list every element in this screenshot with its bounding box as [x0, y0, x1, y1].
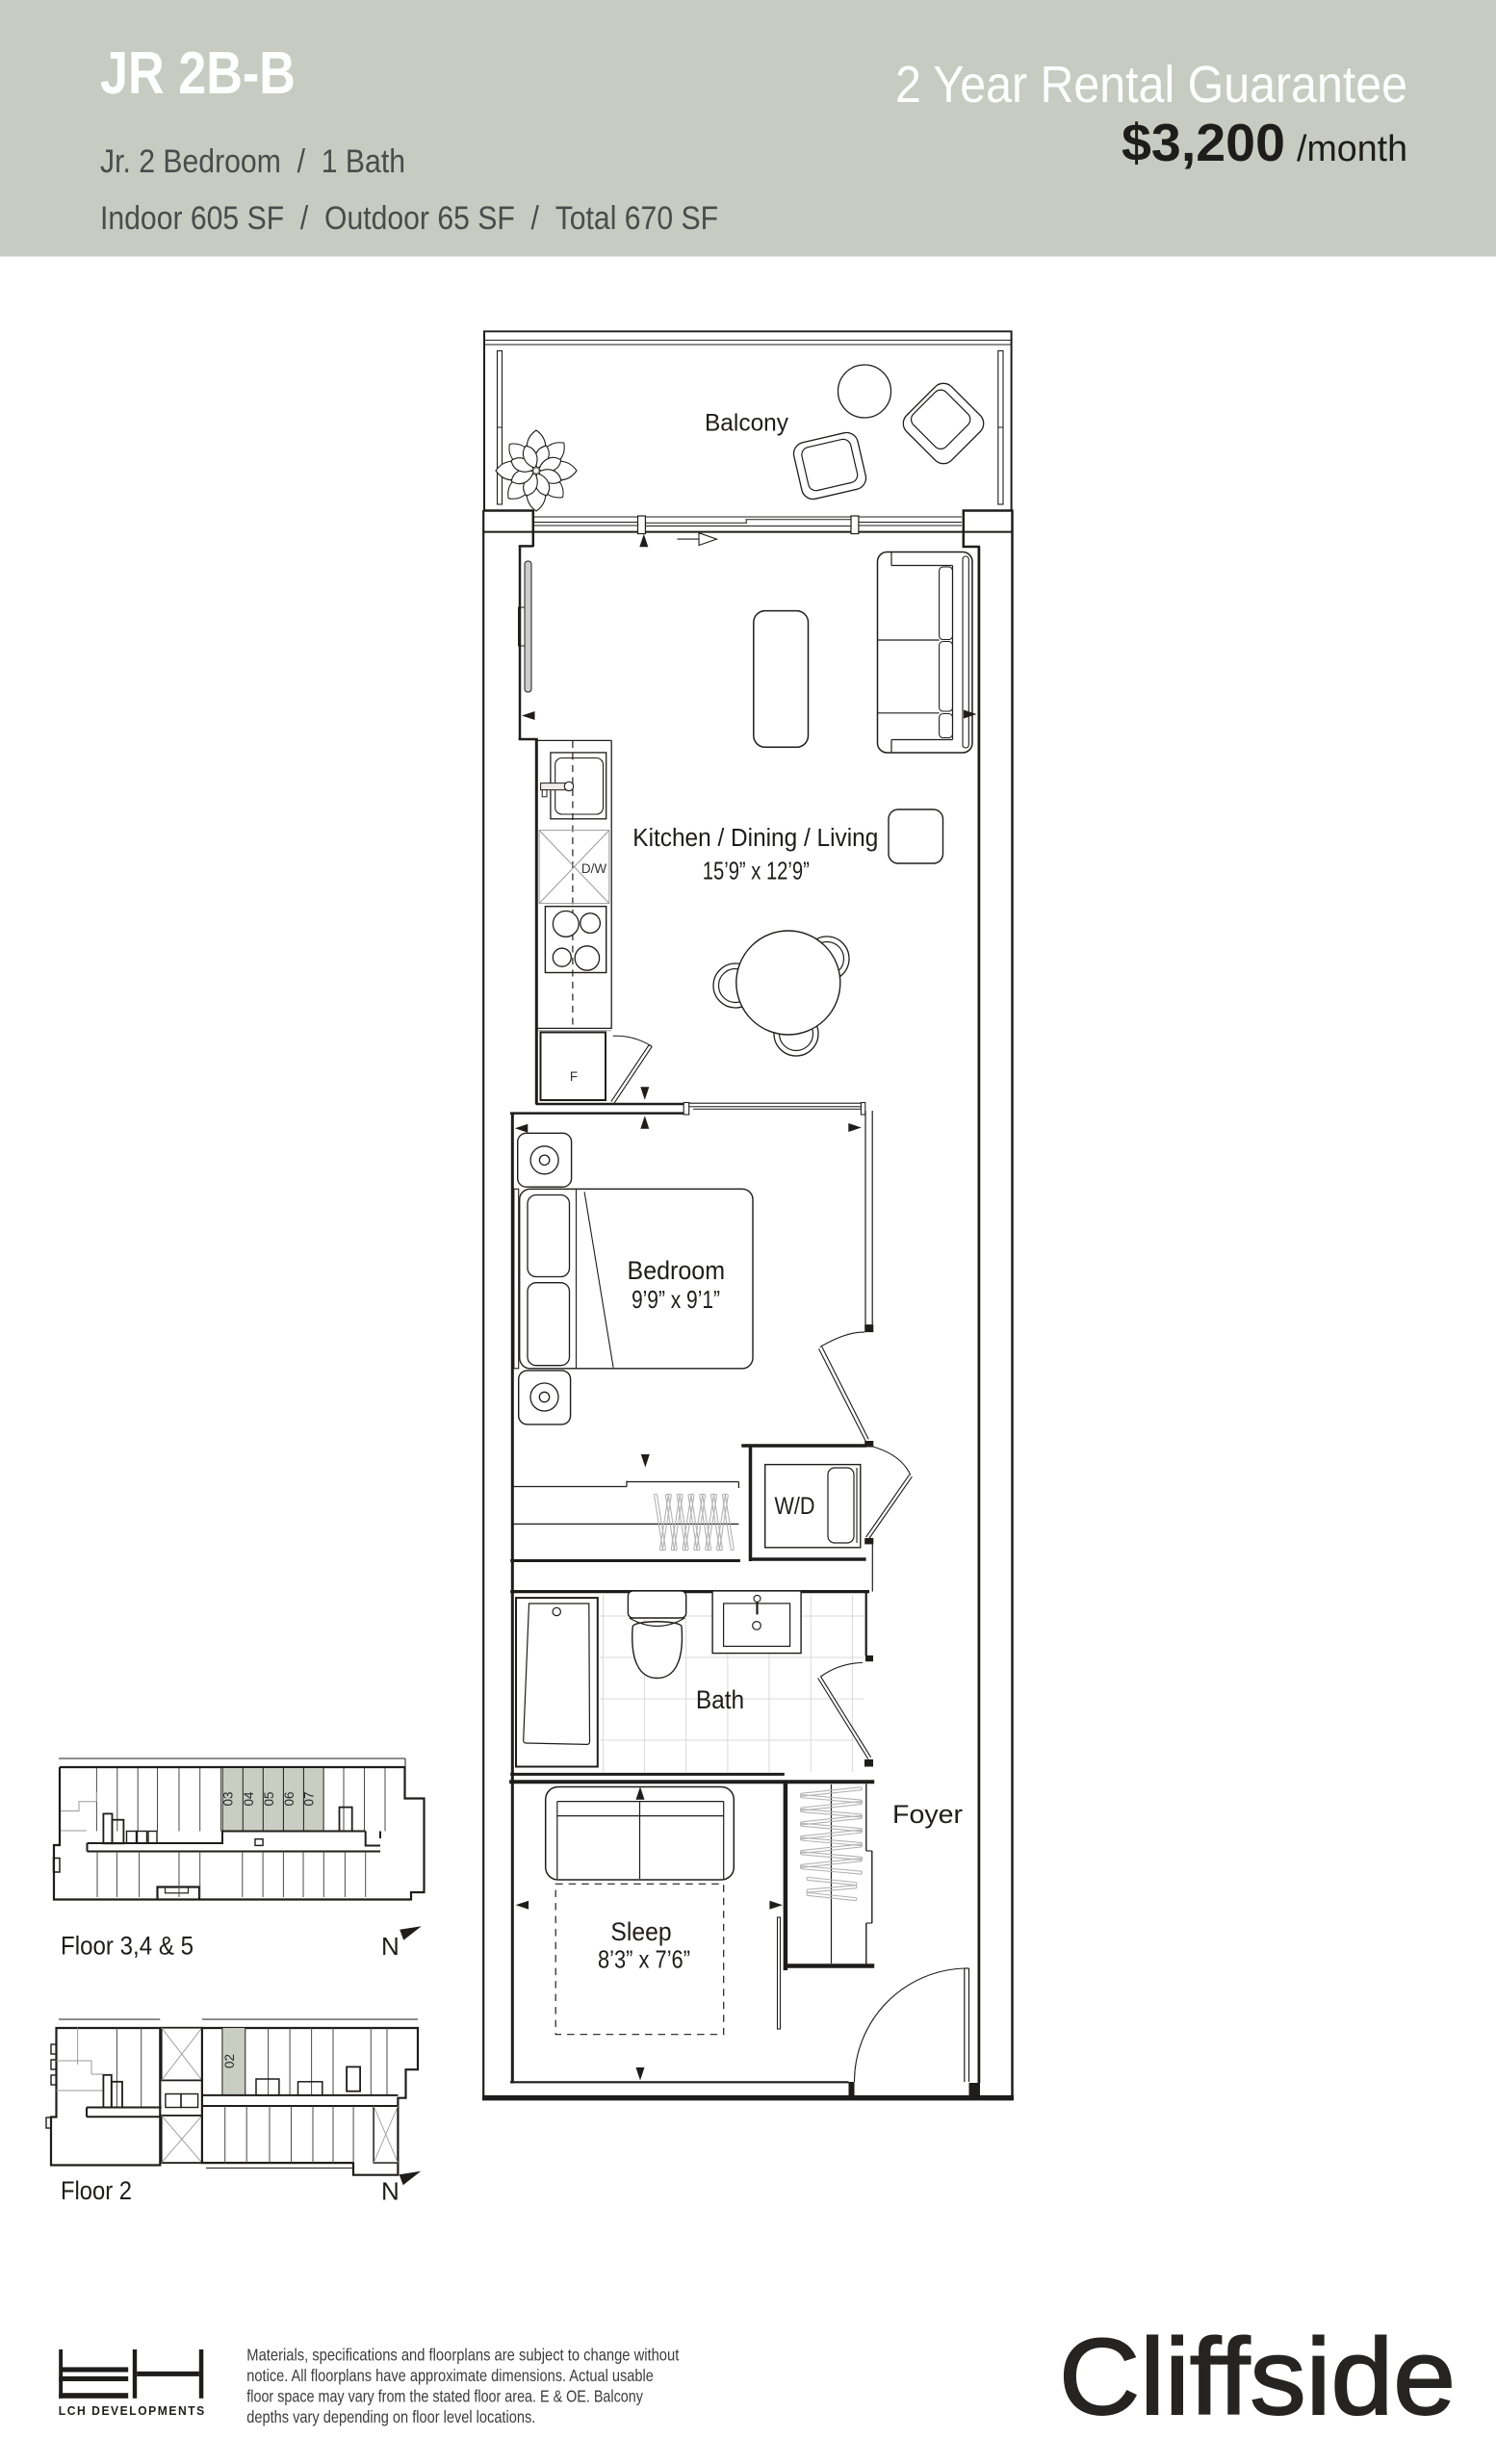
- svg-text:Sleep: Sleep: [610, 1917, 671, 1946]
- svg-text:notice. All floorplans have ap: notice. All floorplans have approximate …: [246, 2366, 654, 2385]
- svg-text:Floor 3,4 & 5: Floor 3,4 & 5: [61, 1932, 193, 1961]
- svg-text:Cliffside: Cliffside: [1059, 2317, 1456, 2437]
- svg-text:Balcony: Balcony: [705, 410, 788, 437]
- svg-text:05: 05: [262, 1791, 276, 1806]
- svg-text:Materials, specifications and: Materials, specifications and floorplans…: [246, 2346, 679, 2365]
- svg-text:F: F: [570, 1069, 578, 1084]
- svg-text:JR 2B-B: JR 2B-B: [100, 40, 296, 107]
- svg-text:15’9” x 12’9”: 15’9” x 12’9”: [703, 856, 810, 885]
- svg-text:Jr. 2 Bedroom / 1 Bath: Jr. 2 Bedroom / 1 Bath: [100, 143, 405, 180]
- svg-text:D/W: D/W: [581, 861, 607, 876]
- svg-text:W/D: W/D: [775, 1493, 815, 1520]
- svg-text:02: 02: [222, 2054, 237, 2068]
- svg-text:9’9” x 9’1”: 9’9” x 9’1”: [632, 1285, 720, 1314]
- svg-text:04: 04: [242, 1791, 256, 1807]
- svg-text:2 Year Rental Guarantee: 2 Year Rental Guarantee: [895, 56, 1407, 114]
- svg-text:Bedroom: Bedroom: [628, 1256, 726, 1285]
- svg-text:N: N: [381, 1932, 400, 1961]
- svg-text:Indoor 605 SF / Outdoor 65 S: Indoor 605 SF / Outdoor 65 SF / Total 67…: [100, 200, 718, 237]
- svg-text:$3,200: $3,200: [1122, 113, 1285, 172]
- svg-text:Foyer: Foyer: [892, 1800, 963, 1829]
- svg-text:floor space may vary from the: floor space may vary from the stated flo…: [246, 2387, 643, 2406]
- svg-text:N: N: [381, 2177, 400, 2206]
- svg-text:Bath: Bath: [696, 1685, 744, 1714]
- svg-text:/month: /month: [1297, 129, 1407, 169]
- svg-text:03: 03: [221, 1791, 236, 1806]
- svg-text:depths vary depending on floor: depths vary depending on floor level loc…: [246, 2407, 535, 2426]
- svg-text:Floor 2: Floor 2: [61, 2176, 132, 2205]
- svg-text:07: 07: [302, 1791, 317, 1806]
- svg-text:06: 06: [282, 1791, 297, 1806]
- svg-text:LCH DEVELOPMENTS: LCH DEVELOPMENTS: [59, 2404, 206, 2418]
- svg-text:Kitchen / Dining / Living: Kitchen / Dining / Living: [632, 825, 878, 852]
- svg-text:8’3” x 7’6”: 8’3” x 7’6”: [598, 1945, 690, 1974]
